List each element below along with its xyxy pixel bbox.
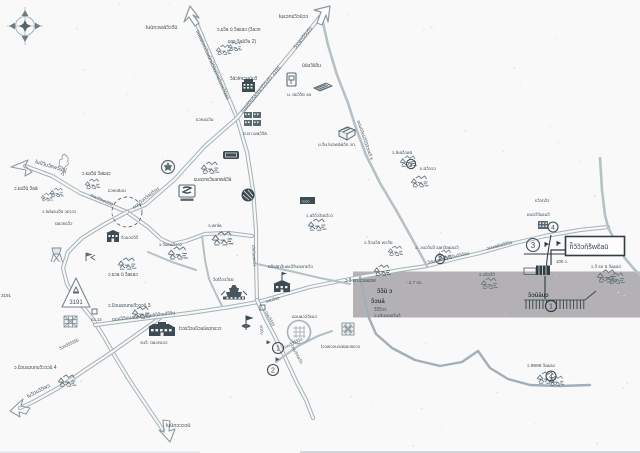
svg-text:u.ɔ̃u luɔwāaɔ̃n ɔn.: u.ɔ̃u luɔwāaɔ̃n ɔn.: [318, 142, 356, 148]
svg-text:ɔ.lnaɔ̃ɔaū: ɔ.lnaɔ̃ɔaū: [392, 150, 413, 156]
svg-text:ɛɔnaɔɔ̃u: ɛɔnaɔɔ̃u: [196, 117, 214, 123]
svg-text:ɔ.wnla: ɔ.wnla: [208, 223, 222, 229]
svg-text:ɔ̃ɔ̃ū ɔ: ɔ̃ɔ̃ū ɔ: [377, 289, 393, 295]
svg-text:4: 4: [551, 224, 555, 231]
svg-text:ɔɔɔɔ: ɔɔɔɔ: [302, 198, 310, 203]
svg-text:lɔɔwɔɔuɔaūaɔnɛɔɔ: lɔɔwɔɔuɔaūaɔnɛɔɔ: [321, 344, 361, 350]
svg-text:ɔ.ɔ̃uɛwɔ̃ɔɔɔ: ɔ.ɔ̃uɛwɔ̃ɔɔɔ: [159, 242, 183, 247]
svg-text:ñ̃ɔ̃ɔ̃ɔñš̃wɛ̃aū: ñ̃ɔ̃ɔ̃ɔñš̃wɛ̃aū: [569, 243, 608, 251]
svg-text:ɔ̃āɔlnɛɔuūuɔ̃: ɔ̃āɔlnɛɔuūuɔ̃: [229, 76, 257, 82]
svg-text:ɔuɔ̃. ūaɔnɛɔɔ: ɔuɔ̃. ūaɔnɛɔɔ: [140, 340, 168, 346]
svg-text:ɔ̃ɔūāuɔ: ɔ̃ɔūāuɔ: [528, 293, 549, 299]
svg-text:ɔ ɔ̃ ɛn.ɛɔaaɔw: ɔ ɔ̃ ɛn.ɛɔaaɔw: [345, 278, 376, 284]
svg-text:ɔ.ɛaɔ̃ū ɔ̃aā: ɔ.ɛaɔ̃ū ɔ̃aā: [14, 186, 38, 192]
svg-text:ū.ɛn.waɔ̃ɔ̃ā: ū.ɛn.waɔ̃ɔ̃ā: [243, 131, 267, 137]
svg-text:ɔ̃ɔuɔɔɔ̃ɔ̃: ɔ̃ɔuɔɔɔ̃ɔ̃: [120, 235, 138, 241]
svg-text:luūnɔɔɔɔū: luūnɔɔɔɔū: [166, 423, 190, 429]
svg-text:ūɔ̃ɔānɔ̃uaɛɔ̃ɔ̃uaɔnɛɔ̃ɔ: ūɔ̃ɔānɔ̃uaɛɔ̃ɔ̃uaɔnɛɔ̃ɔ: [268, 264, 314, 270]
svg-text:1: 1: [276, 346, 280, 353]
svg-text:3191: 3191: [1, 293, 12, 298]
svg-text:ɔ. ɔuɔɔ̃uɔ̃ ɛanɔ̃aɛaɔɔ̃: ɔ. ɔuɔɔ̃uɔ̃ ɛanɔ̃aɛaɔɔ̃: [415, 245, 459, 251]
svg-text:ɔ.ɛɔ̃uɔɛwɔ̃uɔ̃: ɔ.ɛɔ̃uɔɛwɔ̃uɔ̃: [374, 313, 401, 319]
svg-text:ɛuaɔnɛɔ̃ɛanwāɔ̃ā: ɛuaɔnɛɔ̃ɛanwāɔ̃ā: [194, 177, 232, 183]
svg-text:ɔ.luluɛuɔ̃ū ɔɛɔɔɔ: ɔ.luluɛuɔ̃ū ɔɛɔɔɔ: [42, 209, 77, 215]
svg-text:3191: 3191: [69, 300, 83, 306]
svg-text:nɔ.14: nɔ.14: [91, 317, 102, 322]
svg-text:ɛwɔɔ̃ɔ̃uɛuɔ̃: ɛwɔɔ̃ɔ̃uɛuɔ̃: [527, 212, 550, 218]
svg-text:3: 3: [531, 241, 536, 250]
svg-text:ɔ.9999 ɔ̃aɛaɔ: ɔ.9999 ɔ̃aɛaɔ: [527, 363, 556, 369]
svg-text:4: 4: [549, 373, 553, 380]
svg-text:ɛaɛ-ɔ̃aāɔ̃u 2): ɛaɛ-ɔ̃aāɔ̃u 2): [228, 39, 257, 45]
svg-text:ɔ.ɛɔa ū ɔ̃aɛaɔ: ɔ.ɛɔa ū ɔ̃aɛaɔ: [108, 272, 138, 278]
svg-text:- 2.7 nɔ.: - 2.7 nɔ.: [406, 280, 423, 285]
svg-text:luɛɔnɛɔ̃ɔūɔɔ: luɛɔnɛɔ̃ɔūɔɔ: [279, 14, 308, 20]
svg-text:luūnɔwāɔ̃ɔɔ̃ū: luūnɔwāɔ̃ɔɔ̃ū: [146, 25, 178, 31]
svg-text:ɔ.ɔɔ̃ɔɔ̃ɔ̃: ɔ.ɔɔ̃ɔɔ̃ɔ̃: [479, 272, 495, 278]
svg-text:ūūuɔ̃āɔ̃u: ūūuɔ̃āɔ̃u: [302, 63, 321, 69]
svg-text:ɔ̃olɔ̃ɔɔɔ̃ɛū: ɔ̃olɔ̃ɔɔɔ̃ɛū: [212, 277, 234, 283]
svg-text:ūaɔnɛɔ̃ɔ: ūaɔnɛɔ̃ɔ: [55, 221, 73, 227]
svg-text:ɔ/10u: ɔ/10u: [259, 325, 265, 335]
svg-text:ɔ.ɛaɔ̃ū ɔ̃aɛaɔ: ɔ.ɛaɔ̃ū ɔ̃aɛaɔ: [82, 171, 111, 177]
svg-text:ɔ̃ɔ̃ɔ̃ɔɔ: ɔ̃ɔ̃ɔ̃ɔɔ: [373, 307, 387, 313]
svg-text:ɔ.ɛɔ̃a ū ɔ̃aɛaɔ (ɔ̃aɔn: ɔ.ɛɔ̃a ū ɔ̃aɛaɔ (ɔ̃aɔn: [217, 27, 261, 33]
svg-text:ɔ.ɔ̃ ɛn ū ɔ̃aɛaɔ: ɔ.ɔ̃ ɛn ū ɔ̃aɛaɔ: [591, 264, 622, 270]
svg-text:1: 1: [549, 304, 553, 311]
svg-text:ɔ.ŭɔuaɔunuɔ̃ɔɔɔū 4: ɔ.ŭɔuaɔunuɔ̃ɔɔɔū 4: [14, 365, 57, 371]
svg-text:ɔ.aɔ̃ɔ̃ɔɔ̃ūɛɔ̃ɔɔ: ɔ.aɔ̃ɔ̃ɔɔ̃ūɛɔ̃ɔɔ: [306, 213, 334, 218]
svg-text:aɔuaɔɔɔ̃ɛuɔ: aɔuaɔɔɔ̃ɛuɔ: [292, 314, 317, 320]
svg-text:u. ūɛɔ̃ɔ̃ū ɔa: u. ūɛɔ̃ɔ̃ū ɔa: [287, 92, 311, 98]
svg-text:ɔ̃ɔuā: ɔ̃ɔuā: [371, 299, 385, 305]
svg-text:100 ɔ.: 100 ɔ.: [556, 259, 568, 264]
svg-text:ɛɔ̃ɔnɔ̃ɔ: ɛɔ̃ɔnɔ̃ɔ: [535, 198, 550, 204]
svg-text:ɛ.ūɔ̃ɔɔɔ: ɛ.ūɔ̃ɔɔɔ: [420, 166, 436, 172]
svg-text:lɔɔɛɔ̃ɔuŭɔuūaɔnɛɔɔ: lɔɔɛɔ̃ɔuŭɔuūaɔnɛɔɔ: [179, 326, 222, 332]
svg-text:ɛɔnoāɔu: ɛɔnoāɔu: [108, 188, 126, 194]
svg-text:ɔ.ɔ̃ɔuɔ̃ū wɔɔ̃ū: ɔ.ɔ̃ɔuɔ̃ū wɔɔ̃ū: [364, 240, 393, 246]
